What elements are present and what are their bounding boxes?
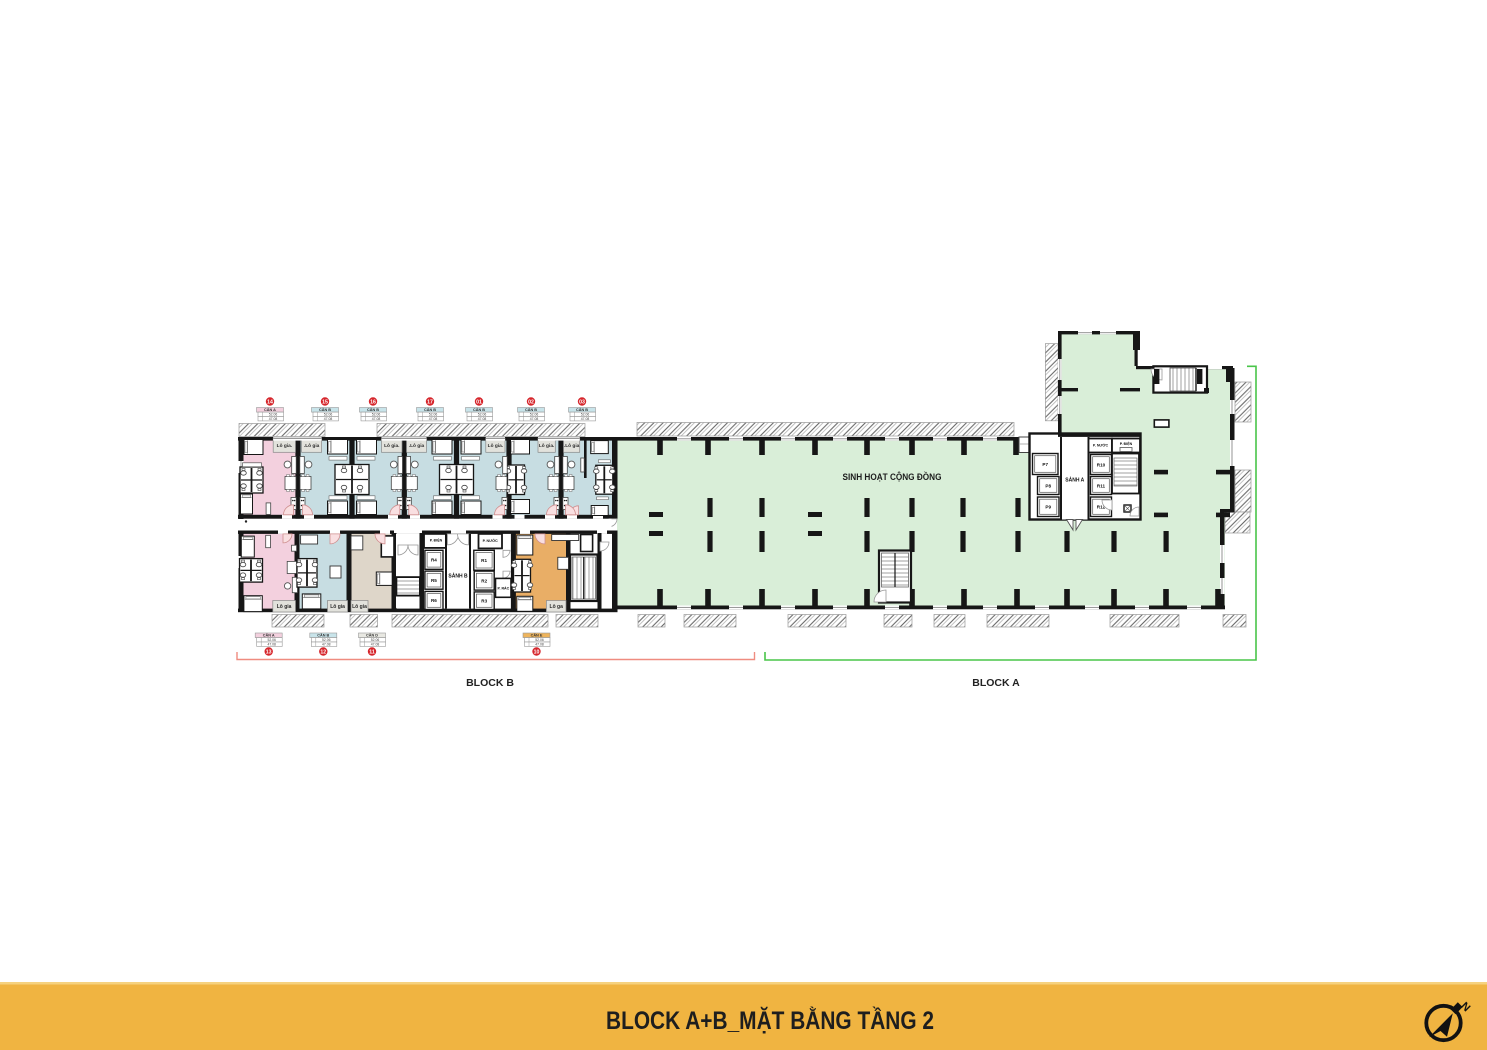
svg-text:14: 14 — [267, 399, 273, 405]
svg-text:47.08: 47.08 — [267, 643, 276, 647]
svg-text:52.06: 52.06 — [535, 638, 544, 642]
svg-text:P. ĐIỆN: P. ĐIỆN — [1120, 441, 1133, 446]
svg-text:CĂN B: CĂN B — [473, 407, 485, 412]
svg-text:CĂN B: CĂN B — [319, 407, 331, 412]
svg-text:47.08: 47.08 — [429, 417, 438, 421]
svg-text:BLOCK B: BLOCK B — [466, 677, 514, 689]
svg-text:P8: P8 — [1045, 483, 1051, 488]
svg-text:P. NƯỚC: P. NƯỚC — [483, 538, 499, 543]
svg-text:R5: R5 — [431, 578, 437, 583]
svg-text:47.08: 47.08 — [581, 417, 590, 421]
svg-text:52.06: 52.06 — [269, 413, 278, 417]
svg-text:16: 16 — [370, 399, 376, 405]
svg-text:P9: P9 — [1045, 505, 1051, 510]
svg-text:.Lô gia: .Lô gia — [564, 443, 580, 449]
svg-text:P7: P7 — [1042, 462, 1048, 467]
svg-text:12: 12 — [320, 649, 326, 655]
svg-text:47.08: 47.08 — [478, 417, 487, 421]
svg-text:Lô gia.: Lô gia. — [277, 443, 292, 449]
svg-text:CĂN B: CĂN B — [424, 407, 436, 412]
svg-text:CĂN A: CĂN A — [263, 633, 275, 638]
svg-text:47.08: 47.08 — [371, 643, 380, 647]
svg-text:47.08: 47.08 — [324, 417, 333, 421]
svg-text:10: 10 — [534, 649, 540, 655]
svg-text:.Lô gia: .Lô gia — [409, 443, 425, 449]
svg-text:R10: R10 — [1097, 462, 1106, 467]
svg-text:P. RÁC: P. RÁC — [498, 586, 510, 591]
svg-text:SINH HOẠT CỘNG ĐỒNG: SINH HOẠT CỘNG ĐỒNG — [843, 471, 942, 482]
svg-text:47.08: 47.08 — [535, 643, 544, 647]
svg-text:CĂN E: CĂN E — [531, 633, 543, 638]
svg-text:R1: R1 — [481, 558, 487, 563]
svg-text:52.06: 52.06 — [530, 413, 539, 417]
svg-text:.Lô gia: .Lô gia — [304, 443, 320, 449]
svg-text:P. ĐIỆN: P. ĐIỆN — [430, 538, 443, 543]
svg-text:52.06: 52.06 — [429, 413, 438, 417]
svg-text:47.08: 47.08 — [372, 417, 381, 421]
svg-text:P. NƯỚC: P. NƯỚC — [1093, 443, 1109, 448]
svg-text:52.06: 52.06 — [372, 413, 381, 417]
svg-text:CĂN B: CĂN B — [525, 407, 537, 412]
svg-text:02: 02 — [528, 399, 534, 405]
svg-text:47.08: 47.08 — [530, 417, 539, 421]
svg-text:01: 01 — [476, 399, 482, 405]
svg-text:CĂN B: CĂN B — [576, 407, 588, 412]
svg-text:CĂN A: CĂN A — [264, 407, 276, 412]
svg-text:R4: R4 — [431, 558, 437, 563]
svg-text:CĂN B: CĂN B — [317, 633, 329, 638]
svg-text:Lô gia.: Lô gia. — [539, 443, 554, 449]
svg-text:15: 15 — [322, 399, 328, 405]
svg-text:52.06: 52.06 — [324, 413, 333, 417]
svg-text:Lô gia: Lô gia — [330, 604, 345, 610]
svg-text:Lô gia: Lô gia — [352, 604, 367, 610]
svg-text:Lô gia: Lô gia — [277, 604, 292, 610]
svg-text:SẢNH B: SẢNH B — [448, 573, 468, 580]
svg-text:SẢNH A: SẢNH A — [1065, 477, 1084, 484]
svg-text:Lô gia.: Lô gia. — [488, 443, 503, 449]
svg-text:Lô gia.: Lô gia. — [384, 443, 399, 449]
svg-text:52.06: 52.06 — [581, 413, 590, 417]
svg-text:47.08: 47.08 — [322, 643, 331, 647]
svg-text:R3: R3 — [481, 599, 487, 604]
svg-text:CĂN D: CĂN D — [366, 633, 378, 638]
svg-text:R2: R2 — [481, 578, 487, 583]
svg-text:BLOCK A+B_MẶT BẰNG TẦNG 2: BLOCK A+B_MẶT BẰNG TẦNG 2 — [606, 1006, 934, 1035]
svg-text:47.08: 47.08 — [269, 417, 278, 421]
svg-text:13: 13 — [266, 649, 272, 655]
svg-text:52.06: 52.06 — [322, 638, 331, 642]
svg-text:R6: R6 — [431, 598, 437, 603]
svg-text:03: 03 — [579, 399, 585, 405]
svg-text:11: 11 — [369, 649, 375, 655]
svg-text:17: 17 — [427, 399, 433, 405]
svg-text:52.06: 52.06 — [478, 413, 487, 417]
svg-text:BLOCK A: BLOCK A — [972, 677, 1020, 689]
svg-text:R11: R11 — [1097, 483, 1106, 488]
svg-text:Lô ga: Lô ga — [550, 604, 564, 610]
svg-text:52.06: 52.06 — [371, 638, 380, 642]
svg-text:CĂN B: CĂN B — [367, 407, 379, 412]
svg-text:52.06: 52.06 — [267, 638, 276, 642]
